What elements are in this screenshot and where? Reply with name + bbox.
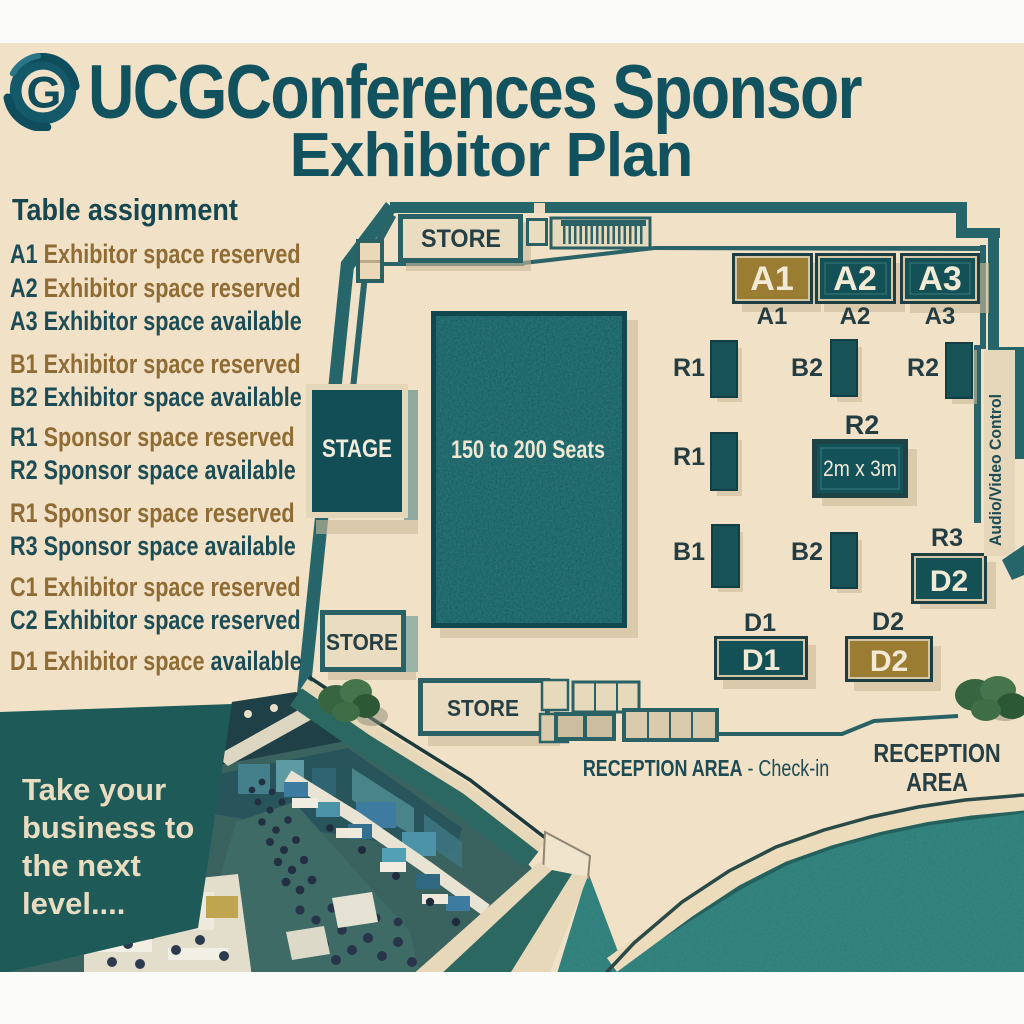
svg-text:D1: D1 <box>744 609 776 637</box>
svg-text:A3: A3 <box>925 303 956 330</box>
svg-text:RECEPTION AREA - Check-in: RECEPTION AREA - Check-in <box>583 756 829 782</box>
svg-text:A1: A1 <box>750 260 793 298</box>
svg-text:A2: A2 <box>833 260 876 298</box>
svg-text:business to: business to <box>22 810 194 845</box>
svg-text:STAGE: STAGE <box>322 435 392 463</box>
svg-text:R2: R2 <box>845 410 880 440</box>
svg-text:AREA: AREA <box>906 768 968 797</box>
svg-text:2m x 3m: 2m x 3m <box>823 456 897 481</box>
svg-text:B1: B1 <box>673 538 705 566</box>
svg-text:STORE: STORE <box>326 629 398 655</box>
svg-text:D2: D2 <box>872 608 904 636</box>
svg-text:G: G <box>27 67 62 118</box>
svg-text:A3: A3 <box>918 260 961 298</box>
svg-text:B2: B2 <box>791 354 823 382</box>
svg-text:the next: the next <box>22 848 141 883</box>
svg-text:D2: D2 <box>870 645 908 678</box>
svg-text:level....: level.... <box>22 886 125 921</box>
svg-text:Audio/Video Control: Audio/Video Control <box>986 394 1005 546</box>
svg-text:Take your: Take your <box>22 772 166 807</box>
svg-text:A2: A2 <box>840 303 871 330</box>
svg-text:R1: R1 <box>673 354 705 382</box>
svg-text:B2: B2 <box>791 538 823 566</box>
svg-text:STORE: STORE <box>421 225 501 253</box>
svg-text:D1: D1 <box>742 644 780 677</box>
svg-text:R2: R2 <box>907 354 939 382</box>
svg-text:R3: R3 <box>931 524 963 552</box>
svg-text:STORE: STORE <box>447 695 519 721</box>
svg-text:D2: D2 <box>930 565 968 598</box>
svg-text:RECEPTION: RECEPTION <box>873 739 1000 768</box>
svg-text:R1: R1 <box>673 443 705 471</box>
svg-text:A1: A1 <box>757 303 788 330</box>
svg-text:150 to 200 Seats: 150 to 200 Seats <box>451 436 605 464</box>
